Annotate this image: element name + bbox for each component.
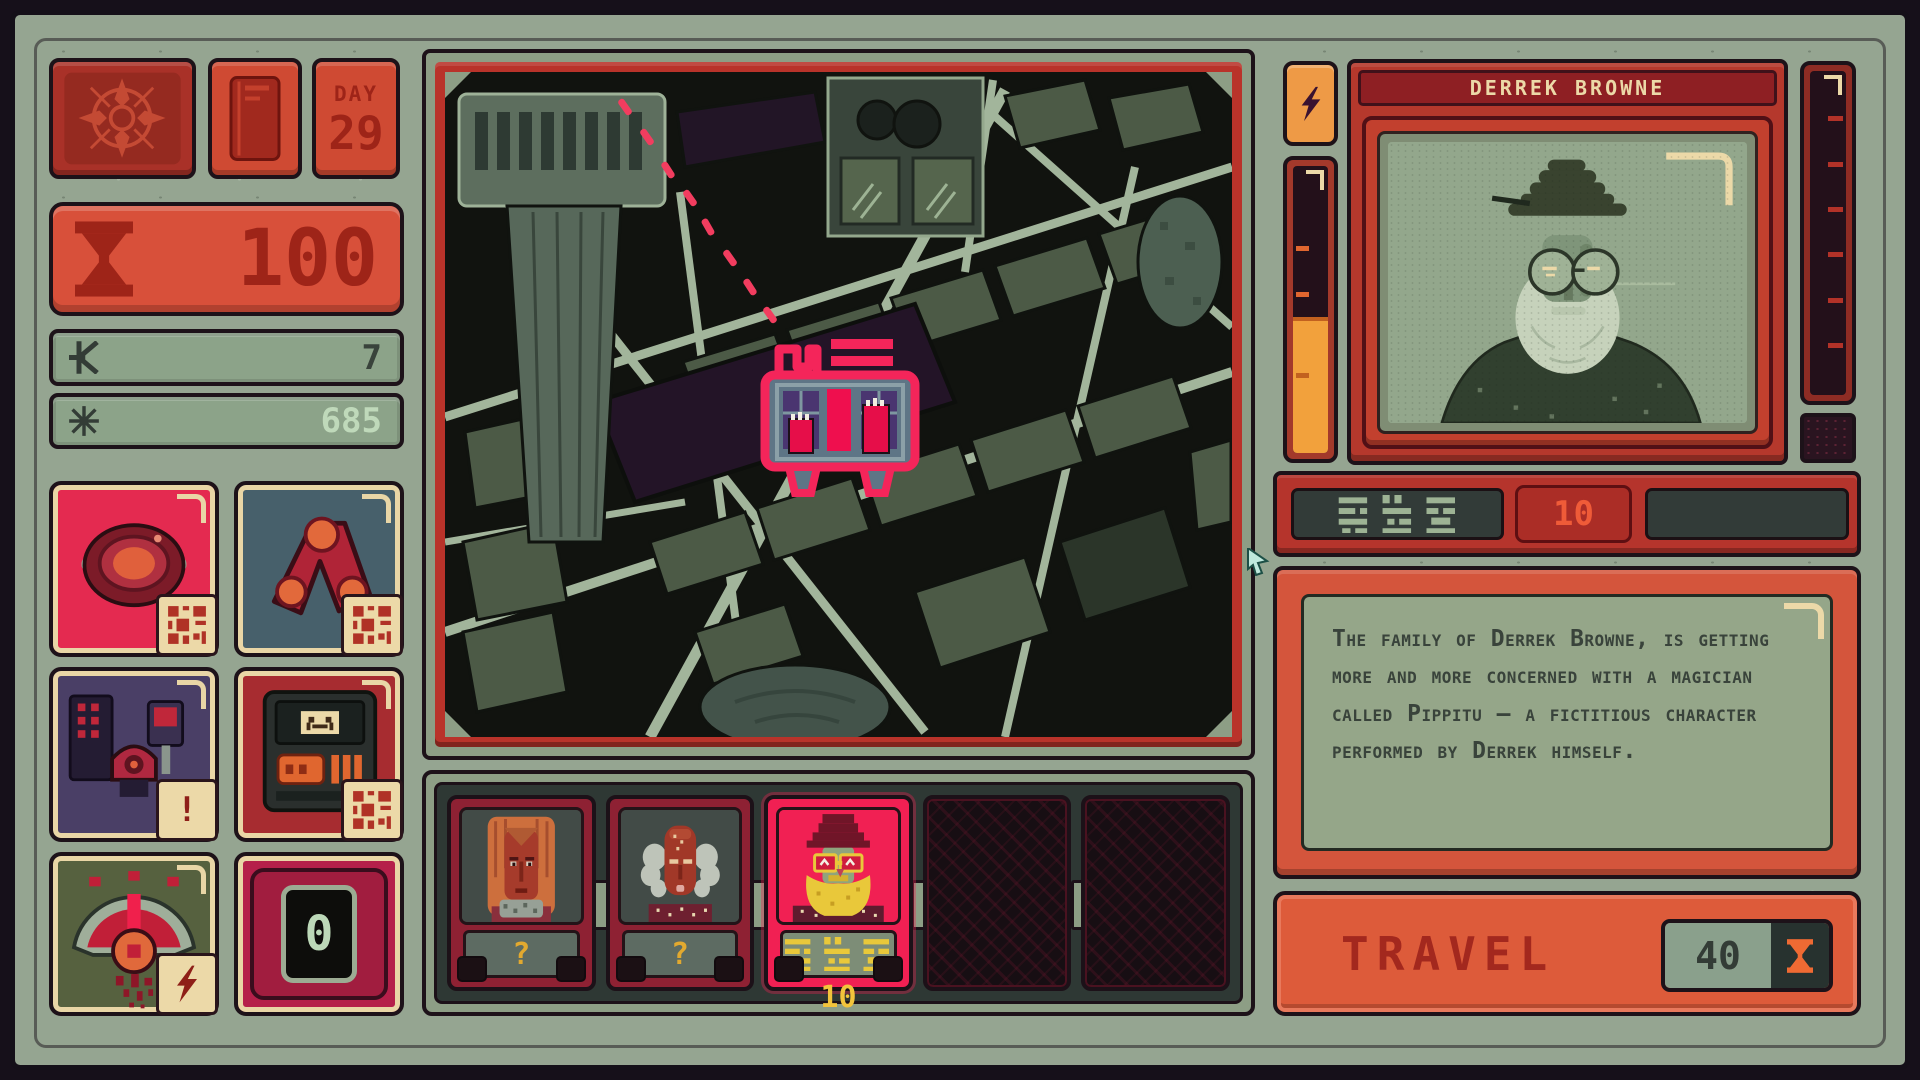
crew-card-4-empty[interactable] (923, 795, 1072, 991)
gauge-tick (1828, 298, 1843, 303)
energy-cost-badge (156, 953, 218, 1015)
map-canvas (445, 72, 1232, 737)
crew-dock-inner: ? (434, 782, 1243, 1004)
patient-name-bar: DERREK BROWNE (1358, 70, 1777, 106)
stamp-glyph-icon (166, 604, 208, 646)
patient-name: DERREK BROWNE (1470, 76, 1666, 100)
crew-card-2[interactable]: ? (606, 795, 755, 991)
counter-display: 0 (281, 885, 357, 983)
bolt-icon (172, 964, 202, 1004)
time-remaining-value: 100 (133, 220, 400, 298)
snowflake-icon (68, 405, 100, 437)
alert-badge: ! (156, 779, 218, 841)
gauge-tube (1293, 166, 1328, 453)
corner-accent (1306, 170, 1324, 190)
gauge-tick (1828, 207, 1843, 212)
gauge-tick (1296, 373, 1309, 378)
card-feet (457, 956, 586, 982)
corner-accent (177, 494, 206, 523)
patient-panel: DERREK BROWNE (1347, 59, 1788, 465)
corner-accent (362, 680, 391, 709)
device-tile-fan[interactable] (49, 852, 219, 1016)
corner-accent (1824, 75, 1842, 95)
patient-monitor (1362, 116, 1773, 449)
monitor-bezel (1377, 131, 1758, 434)
energy-indicator-tile (1283, 61, 1338, 146)
portrait-magician-icon (779, 810, 898, 922)
card-feet (616, 956, 745, 982)
diagnosis-glyphs (1291, 488, 1504, 540)
diagnosis-empty-slot (1645, 488, 1849, 540)
device-tile-lab[interactable]: ! (49, 667, 219, 842)
gauge-tick (1828, 162, 1843, 167)
device-stamp (156, 594, 218, 656)
fee-display: 10 (1515, 485, 1632, 543)
money-panel: 7 (49, 329, 404, 386)
patient-portrait-screen (1388, 142, 1747, 423)
bolt-icon (1297, 82, 1325, 126)
hourglass-icon (75, 221, 133, 297)
map-mode-button[interactable] (49, 58, 196, 179)
day-value: 29 (328, 110, 383, 156)
money-value: 7 (99, 341, 400, 375)
stamp-glyph-icon (351, 789, 393, 831)
counter-inner: 0 (250, 868, 388, 1000)
portrait-woman-icon (462, 810, 581, 922)
gauge-tick (1828, 116, 1843, 121)
energy-value: 685 (100, 404, 400, 438)
status-gauge (1800, 61, 1856, 405)
gauge-tick (1828, 343, 1843, 348)
crew-card-1[interactable]: ? (447, 795, 596, 991)
device-tile-counter[interactable]: 0 (234, 852, 404, 1016)
map-frame (435, 62, 1242, 747)
city-map-panel (422, 49, 1255, 760)
currency-icon (69, 341, 99, 374)
status-chip (1800, 413, 1856, 463)
card-feet (774, 956, 903, 982)
device-tile-saucer[interactable] (49, 481, 219, 657)
book-icon (225, 71, 285, 166)
diagnosis-bar: 10 (1273, 471, 1861, 557)
gauge-tick (1828, 252, 1843, 257)
crew-photo-2 (618, 807, 743, 925)
day-label: DAY (334, 82, 378, 106)
case-description-text: The family of Derrek Browne, is getting … (1332, 626, 1769, 764)
gauge-tick (1296, 246, 1309, 251)
case-description: The family of Derrek Browne, is getting … (1301, 594, 1833, 851)
travel-cost-pill: 40 (1661, 919, 1833, 992)
device-stamp (341, 779, 403, 841)
device-tile-boomerang[interactable] (234, 481, 404, 657)
crew-photo-1 (459, 807, 584, 925)
travel-cost: 40 (1665, 923, 1771, 988)
energy-gauge (1283, 156, 1338, 463)
corner-accent (362, 494, 391, 523)
travel-label: TRAVEL (1277, 927, 1555, 981)
crew-card-5-empty[interactable] (1081, 795, 1230, 991)
portrait-elder-icon (621, 810, 740, 922)
crew-dock: ? (422, 770, 1255, 1016)
gauge-fill (1293, 317, 1328, 453)
crew-card-3-selected[interactable]: 10 (764, 795, 913, 991)
device-stamp (341, 594, 403, 656)
journal-button[interactable] (208, 58, 302, 179)
time-remaining-panel: 100 (49, 202, 404, 316)
crew-price: 10 (768, 983, 909, 1013)
case-description-panel: The family of Derrek Browne, is getting … (1273, 566, 1861, 879)
map-rooftop-building (828, 78, 983, 236)
gauge-tube (1810, 71, 1846, 395)
travel-time-box (1771, 923, 1829, 988)
corner-accent (1784, 603, 1824, 639)
stamp-glyph-icon (351, 604, 393, 646)
crew-photo-3 (776, 807, 901, 925)
corner-accent (177, 680, 206, 709)
day-counter: DAY 29 (312, 58, 400, 179)
device-tile-console[interactable] (234, 667, 404, 842)
energy-panel: 685 (49, 393, 404, 449)
glyph-script-icon (1313, 495, 1483, 533)
travel-button[interactable]: TRAVEL 40 (1273, 891, 1861, 1016)
hourglass-icon (1787, 939, 1813, 973)
portrait-derrek-icon (1388, 142, 1747, 423)
city-map[interactable] (445, 72, 1232, 737)
cursor-icon (1246, 548, 1270, 576)
compass-icon (53, 62, 192, 175)
game-screen: DAY 29 100 7 685 (0, 0, 1920, 1080)
gauge-tick (1296, 292, 1309, 297)
corner-accent (177, 865, 206, 894)
